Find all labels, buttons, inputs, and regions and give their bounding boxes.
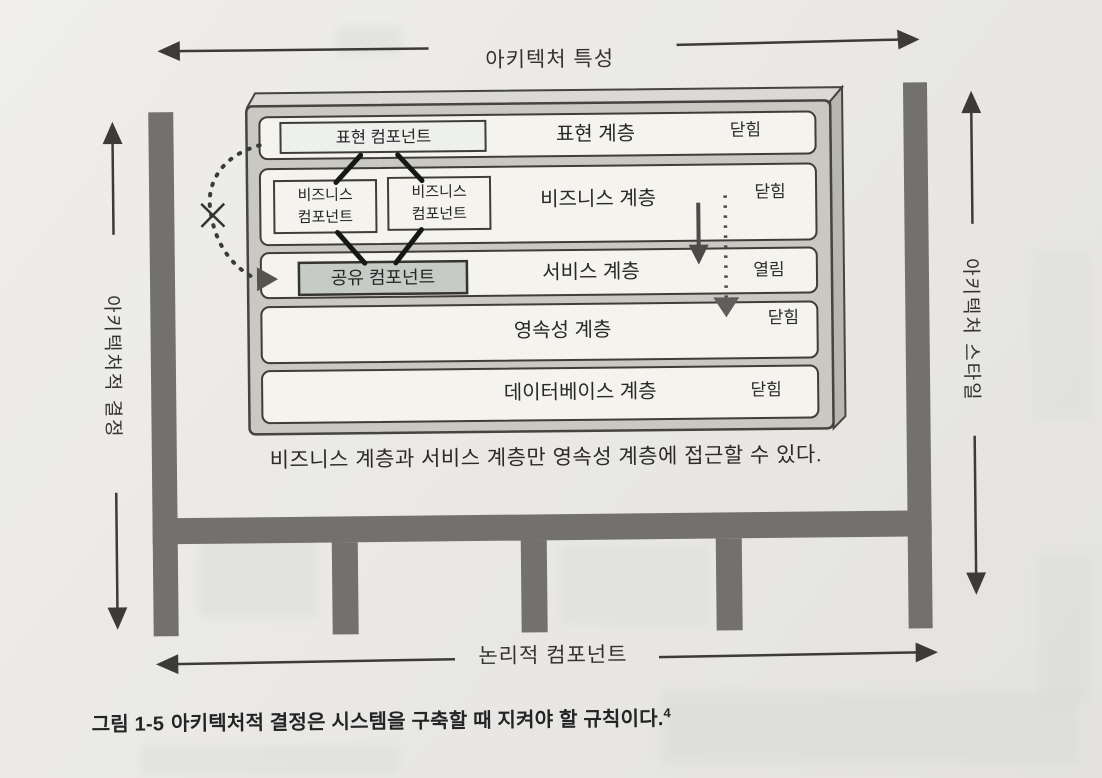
wall-left — [148, 112, 178, 636]
arrow-line — [971, 110, 972, 224]
arrow-head-left-icon — [161, 43, 179, 59]
top-axis-title: 아키텍처 특성 — [485, 47, 614, 72]
shared-component-label: 공유 컴포넌트 — [331, 267, 436, 289]
wall-right — [903, 82, 933, 628]
left-axis-title: 아키텍처적 결정 — [100, 295, 129, 439]
pillar-3 — [716, 538, 743, 630]
layer-label-service: 서비스 계층 — [542, 261, 640, 285]
arrow-line — [677, 40, 901, 45]
layer-label-database: 데이터베이스 계층 — [504, 381, 657, 406]
pillar-2 — [521, 540, 548, 632]
business-component-label-2: 비즈니스 컴포넌트 — [411, 181, 467, 225]
arrow-head-left-icon — [159, 656, 177, 672]
layer-label-business: 비즈니스 계층 — [540, 188, 656, 212]
arrow-line — [659, 652, 919, 657]
layer-state-persistence: 닫힘 — [768, 308, 799, 328]
layer-state-database: 닫힘 — [750, 380, 781, 400]
pillar-1 — [332, 542, 359, 634]
arrow-head-up-icon — [963, 94, 979, 112]
footnote-marker: 4 — [663, 705, 671, 720]
layer-state-service: 열림 — [753, 260, 784, 280]
presentation-component-label: 표현 컴포넌트 — [336, 128, 432, 148]
arrow-line — [175, 659, 455, 664]
bottom-axis-title: 논리적 컴포넌트 — [478, 643, 627, 669]
layer-label-presentation: 표현 계층 — [556, 123, 635, 147]
arrow-line — [113, 141, 114, 235]
figure-caption-text: 아키텍처적 결정은 시스템을 구축할 때 지켜야 할 규칙이다. — [171, 708, 664, 735]
book-page-photo: 아키텍처 특성 논리적 컴포넌트 아키텍처적 결정 아키텍처 스타일 표현 계층… — [0, 0, 1102, 778]
business-component-line2: 컴포넌트 — [298, 206, 353, 228]
beam-horizontal — [152, 510, 931, 544]
arrow-line — [116, 493, 117, 611]
figure-number: 그림 1-5 — [92, 713, 165, 736]
arrow-head-up-icon — [104, 125, 120, 143]
figure-1-5-diagram: 아키텍처 특성 논리적 컴포넌트 아키텍처적 결정 아키텍처 스타일 표현 계층… — [0, 0, 1102, 778]
figure-caption: 그림 1-5아키텍처적 결정은 시스템을 구축할 때 지켜야 할 규칙이다.4 — [91, 702, 671, 737]
arrow-head-right-icon — [898, 31, 916, 47]
layer-state-business: 닫힘 — [754, 182, 785, 202]
business-component-line1: 비즈니스 — [411, 181, 466, 203]
business-component-label-1: 비즈니스 컴포넌트 — [297, 185, 353, 229]
arrow-head-down-icon — [968, 574, 984, 592]
right-axis-title: 아키텍처 스타일 — [958, 258, 987, 402]
arrow-line — [177, 48, 429, 51]
layer-label-persistence: 영속성 계층 — [514, 319, 612, 343]
arrow-head-down-icon — [109, 609, 125, 627]
business-component-line2: 컴포넌트 — [412, 203, 467, 225]
arrow-head-right-icon — [917, 644, 935, 660]
business-component-line1: 비즈니스 — [297, 185, 352, 207]
layer-state-presentation: 닫힘 — [730, 120, 761, 140]
arrow-line — [975, 436, 976, 576]
